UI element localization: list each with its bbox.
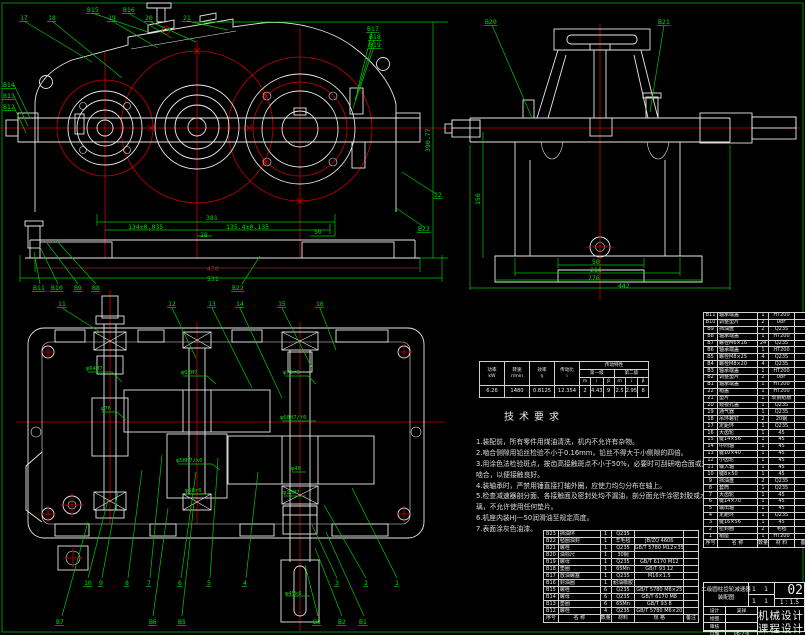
table-row: 16大齿轮145 xyxy=(704,430,805,437)
table-cell: 定距环 xyxy=(718,423,758,430)
signature-label: 设计 xyxy=(704,607,726,614)
table-row: 12小齿轮145 xyxy=(704,458,805,465)
table-cell: Q235 xyxy=(769,485,795,492)
table-row: 5输出轴145 xyxy=(704,506,805,513)
table-cell xyxy=(795,492,805,499)
table-row: 7大齿轮145 xyxy=(704,492,805,499)
table-cell: 2 xyxy=(758,478,769,485)
annotation-text: 2 xyxy=(364,579,368,587)
table-cell: 键16×56 xyxy=(718,520,758,527)
table-cell: 5 xyxy=(704,506,718,513)
table-row: B12螺栓4Q235GB/T 5780 M6×20 xyxy=(544,608,699,615)
table-cell xyxy=(684,559,699,566)
table-cell: Q235 xyxy=(612,587,636,594)
annotation-text: B9 xyxy=(74,284,82,292)
table-cell: B1 xyxy=(704,382,718,389)
table-header-cell: 数量 xyxy=(601,615,612,623)
table-cell: 1 xyxy=(758,513,769,520)
annotation-text: B7 xyxy=(56,618,64,626)
annotation-text: B13 xyxy=(3,92,15,100)
annotation-text: 531 xyxy=(207,275,219,283)
table-cell: 21 xyxy=(704,396,718,403)
table-cell: 2 xyxy=(758,327,769,334)
annotation-text: φ76 xyxy=(101,406,111,412)
table-cell: 螺栓 xyxy=(559,587,601,594)
table-cell: B22 xyxy=(544,538,559,545)
output-shaft-assembly xyxy=(228,332,374,622)
table-cell: Q235 xyxy=(769,478,795,485)
annotation-text: φ62H7 xyxy=(181,370,198,376)
table-header-cell: 备注 xyxy=(684,615,699,623)
table-cell: B13 xyxy=(544,601,559,608)
table-cell: 45 xyxy=(769,506,795,513)
table-cell xyxy=(795,334,805,341)
table-cell: B8 xyxy=(704,334,718,341)
table-row: B9挡油盘2Q235 xyxy=(704,327,805,334)
table-cell: 轴承端盖 xyxy=(718,347,758,354)
table-header-row: 序号名 称数量材料规 格备注 xyxy=(544,615,699,623)
annotation-text: B2 xyxy=(338,618,346,626)
table-cell: 螺栓 xyxy=(559,608,601,615)
table-row: 21垫片1软钢纸板 xyxy=(704,396,805,403)
table-row: B13垫圈665MnGB/T 93 8 xyxy=(544,601,699,608)
table-cell: Q235 xyxy=(612,608,636,615)
table-cell: 45 xyxy=(769,471,795,478)
annotation-text: φ16H7 xyxy=(283,490,300,496)
table-cell: 12 xyxy=(704,458,718,465)
annotation-text: 14 xyxy=(236,300,244,308)
table-cell: 调整垫片 xyxy=(718,375,758,382)
table-cell xyxy=(795,341,805,348)
table-cell: 2 xyxy=(704,527,718,534)
table-cell: B9 xyxy=(704,327,718,334)
signature-label: 审核 xyxy=(704,623,726,630)
table-cell xyxy=(795,327,805,334)
table-cell: 20 xyxy=(704,403,718,410)
annotation-text: 1 xyxy=(395,579,399,587)
signature-value: 吴祥 xyxy=(726,607,757,614)
annotation-text: B19 xyxy=(369,41,381,49)
table-cell xyxy=(684,608,699,615)
flange-hole xyxy=(377,58,390,71)
table-cell: 45 xyxy=(769,499,795,506)
table-cell: 14 xyxy=(704,444,718,451)
table-cell: 螺栓M6×16 xyxy=(718,341,758,348)
annotation-text: 22 xyxy=(434,191,442,199)
table-cell: 油标尺 xyxy=(559,552,601,559)
course-title: 机械设计 课程设计 xyxy=(758,607,804,635)
table-cell: 1 xyxy=(601,580,612,587)
table-row: B5螺栓M8×254Q235 xyxy=(704,354,805,361)
table-cell: Q235 xyxy=(769,354,795,361)
table-row: 1箱座1HT200 xyxy=(704,534,805,541)
annotation-text: 216 xyxy=(590,266,602,274)
table-cell: 1 xyxy=(758,451,769,458)
table-row: B20油标尺130钢 xyxy=(544,552,699,559)
table-row: 13键10×40145 xyxy=(704,451,805,458)
title-block: 二级圆柱齿轮减速器 装配图 1 1 1 1 02 1 : 1.5 设计吴祥绘图审… xyxy=(703,582,805,632)
table-cell: GB/T 5780 M12×35 xyxy=(635,545,684,552)
table-cell: 24 xyxy=(758,341,769,348)
table-cell xyxy=(684,587,699,594)
table-cell: 45 xyxy=(769,520,795,527)
annotation-text: B10 xyxy=(51,284,63,292)
table-cell xyxy=(795,368,805,375)
drawing-number: 02 xyxy=(775,583,804,599)
table-cell xyxy=(795,458,805,465)
signature-value xyxy=(726,615,757,622)
table-row: B14螺母6Q235GB/T 6170 M8 xyxy=(544,594,699,601)
table-row: B2调整垫片208F xyxy=(704,375,805,382)
table-cell: 耐油橡胶 xyxy=(612,580,636,587)
table-cell: 窥视孔盖 xyxy=(718,403,758,410)
table-row: B18垫圈165MnGB/T 93 12 xyxy=(544,566,699,573)
table-cell: 1 xyxy=(758,520,769,527)
table-cell: 2 xyxy=(758,527,769,534)
annotation-text: B18 xyxy=(369,33,381,41)
table-cell: B16 xyxy=(544,580,559,587)
table-cell: HT200 xyxy=(769,368,795,375)
drawing-title: 二级圆柱齿轮减速器 装配图 xyxy=(704,583,749,606)
table-cell xyxy=(795,354,805,361)
table-cell: 键14×70 xyxy=(718,499,758,506)
table-row: 22箱盖1HT200 xyxy=(704,389,805,396)
annotation-text: 150 xyxy=(474,193,482,205)
table-cell: 20钢 xyxy=(769,416,795,423)
table-row: 19通气器1Q235 xyxy=(704,409,805,416)
table-cell: B3 xyxy=(704,368,718,375)
table-row: 14中间轴145 xyxy=(704,444,805,451)
table-cell: 小齿轮 xyxy=(718,458,758,465)
table-row: B17放油螺塞1Q235M16×1.5 xyxy=(544,573,699,580)
table-cell xyxy=(795,347,805,354)
annotation-text: B21 xyxy=(658,18,670,26)
tech-requirement-item: 5.检查减速器剖分面、各接触面及密封处均不漏油，剖分面允许涂密封胶或水玻璃，不允… xyxy=(476,491,716,513)
table-cell xyxy=(795,375,805,382)
table-cell: 大齿轮 xyxy=(718,430,758,437)
table-cell: Q235 xyxy=(612,594,636,601)
table-cell: 大齿轮 xyxy=(718,492,758,499)
table-cell: 1 xyxy=(758,389,769,396)
table-row: 6键14×70145 xyxy=(704,499,805,506)
table-cell: 1 xyxy=(758,313,769,320)
table-cell: 1 xyxy=(601,566,612,573)
table-cell: 螺栓 xyxy=(559,545,601,552)
legs xyxy=(515,142,680,256)
annotation-text: φ48 xyxy=(291,466,301,472)
annotation-text: φ58H7/k6 xyxy=(176,458,203,464)
annotation-text: B14 xyxy=(3,81,15,89)
table-cell: 45 xyxy=(769,492,795,499)
annotation-text: 7 xyxy=(147,579,151,587)
table-cell: 1 xyxy=(758,403,769,410)
table-cell: Q235 xyxy=(612,573,636,580)
table-cell: Q235 xyxy=(769,341,795,348)
table-cell: 65Mn xyxy=(612,601,636,608)
table-cell: 封油圈 xyxy=(559,580,601,587)
table-cell xyxy=(795,389,805,396)
table-cell: 毛毡 xyxy=(769,527,795,534)
table-cell: B2 xyxy=(704,375,718,382)
table-row: B23挡油环1Q235 xyxy=(544,531,699,538)
table-cell: 1 xyxy=(601,552,612,559)
table-cell: 9 xyxy=(704,478,718,485)
table-cell xyxy=(795,430,805,437)
table-row: B8轴承端盖1HT200 xyxy=(704,334,805,341)
table-header-cell: 材 料 xyxy=(769,540,795,548)
table-cell: 垫圈 xyxy=(559,601,601,608)
table-cell: B11 xyxy=(704,313,718,320)
signature-value: 06-7-6 xyxy=(726,631,757,635)
annotation-text: B1 xyxy=(359,618,367,626)
table-cell: 1 xyxy=(758,409,769,416)
table-cell: M16×1.5 xyxy=(635,573,684,580)
table-row: B10调整垫片208F xyxy=(704,320,805,327)
table-header-cell: 备注 xyxy=(795,540,805,548)
annotation-text: B6 xyxy=(149,618,157,626)
housing-plan-outer xyxy=(28,328,424,538)
annotation-text: φ60H7/f6 xyxy=(280,415,307,421)
tech-requirements-title: 技术要求 xyxy=(504,408,716,423)
annotation-text: 11 xyxy=(58,300,66,308)
front-view xyxy=(0,3,456,258)
annotation-text: 8 xyxy=(125,579,129,587)
table-cell: 1 xyxy=(758,382,769,389)
table-cell: 4 xyxy=(704,513,718,520)
table-cell xyxy=(795,382,805,389)
table-cell: 挡油环 xyxy=(559,531,601,538)
table-cell xyxy=(795,478,805,485)
table-cell: Q235 xyxy=(612,531,636,538)
annotation-text: 20 xyxy=(145,14,153,22)
base-feet xyxy=(25,240,420,258)
tech-requirement-item: 6.机座内装HJ—50润滑油至规定高度。 xyxy=(476,513,716,524)
table-cell: 轴承端盖 xyxy=(718,382,758,389)
table-cell: B15 xyxy=(544,587,559,594)
table-cell: 1 xyxy=(758,396,769,403)
tech-requirement-item: 4.装轴承时，严禁用锤直接打轴外圈，应使力均匀分布在轴上。 xyxy=(476,481,716,492)
annotation-text: B22 xyxy=(232,284,244,292)
table-row: 11输入轴145 xyxy=(704,465,805,472)
table-row: B22毡圈油封1羊毛毡JB/ZQ 4606 xyxy=(544,538,699,545)
table-cell xyxy=(795,403,805,410)
table-row: B1轴承端盖1HT200 xyxy=(704,382,805,389)
table-cell xyxy=(795,499,805,506)
table-cell xyxy=(795,423,805,430)
annotation-text: 13 xyxy=(208,300,216,308)
annotation-text: 28 xyxy=(200,231,208,239)
table-row: 17定距环1Q235 xyxy=(704,423,805,430)
table-cell: 1 xyxy=(601,559,612,566)
annotation-text: 442 xyxy=(618,282,630,290)
annotation-text: B12 xyxy=(3,103,15,111)
table-cell xyxy=(635,552,684,559)
annotation-text: B17 xyxy=(367,25,379,33)
std-parts-table: B23挡油环1Q235B22毡圈油封1羊毛毡JB/ZQ 4606B21螺栓1Q2… xyxy=(543,530,699,623)
annotation-text: 50 xyxy=(314,228,322,236)
table-cell: 螺栓M8×25 xyxy=(718,354,758,361)
table-cell: GB/T 6170 M8 xyxy=(635,594,684,601)
table-cell: Q235 xyxy=(612,559,636,566)
table-cell: 通气器 xyxy=(718,409,758,416)
upper-body xyxy=(537,50,658,118)
side-view xyxy=(445,24,800,300)
table-cell: B19 xyxy=(544,559,559,566)
table-cell: 1 xyxy=(758,506,769,513)
table-cell: 螺母 xyxy=(559,594,601,601)
table-cell: 放油螺塞 xyxy=(559,573,601,580)
table-cell: 1 xyxy=(601,573,612,580)
signature-label: 日期 xyxy=(704,631,726,635)
table-cell: 65Mn xyxy=(612,566,636,573)
table-cell: B20 xyxy=(544,552,559,559)
table-cell: B12 xyxy=(544,608,559,615)
table-cell: 1 xyxy=(758,347,769,354)
table-cell: B4 xyxy=(704,361,718,368)
table-cell: 2 xyxy=(758,320,769,327)
table-cell: 18 xyxy=(704,416,718,423)
annotation-text: 135.4±0.135 xyxy=(226,223,269,231)
table-header-cell: 序号 xyxy=(544,615,559,623)
table-header-row: 序号名 称数量材 料备注 xyxy=(704,540,805,548)
table-cell: 7 xyxy=(704,492,718,499)
signature-label: 绘图 xyxy=(704,615,726,622)
table-cell: 30钢 xyxy=(612,552,636,559)
table-cell xyxy=(795,465,805,472)
table-row: B11轴承端盖1HT200 xyxy=(704,313,805,320)
lifting-slot xyxy=(567,35,637,44)
table-cell: 螺栓M8×20 xyxy=(718,361,758,368)
table-cell xyxy=(795,451,805,458)
table-cell xyxy=(684,531,699,538)
table-row: 8套筒1Q235 xyxy=(704,485,805,492)
table-cell xyxy=(795,409,805,416)
table-cell: 垫片 xyxy=(718,396,758,403)
table-cell xyxy=(795,513,805,520)
table-cell: 密封圈 xyxy=(718,527,758,534)
table-cell: B23 xyxy=(544,531,559,538)
table-cell: 键10×40 xyxy=(718,451,758,458)
table-cell xyxy=(795,320,805,327)
table-cell: 1 xyxy=(758,499,769,506)
table-cell: 轴承端盖 xyxy=(718,334,758,341)
table-cell: 1 xyxy=(758,465,769,472)
table-cell xyxy=(795,437,805,444)
table-cell: 输入轴 xyxy=(718,465,758,472)
table-cell xyxy=(635,531,684,538)
annotation-text: 3 xyxy=(335,579,339,587)
table-cell xyxy=(795,444,805,451)
signature-value xyxy=(726,623,757,630)
table-cell xyxy=(795,471,805,478)
table-cell: Q235 xyxy=(769,403,795,410)
table-cell: 中间轴 xyxy=(718,444,758,451)
table-header-cell: 序号 xyxy=(704,540,718,548)
annotation-text: 134±0.035 xyxy=(128,223,163,231)
table-cell: 1 xyxy=(758,437,769,444)
table-cell: 软钢纸板 xyxy=(769,396,795,403)
table-cell: B21 xyxy=(544,545,559,552)
table-header-cell: 规 格 xyxy=(635,615,684,623)
table-cell: 1 xyxy=(758,430,769,437)
table-cell xyxy=(684,573,699,580)
table-cell: 套筒 xyxy=(718,485,758,492)
table-row: 15键14×56145 xyxy=(704,437,805,444)
annotation-text: B5 xyxy=(178,618,186,626)
table-cell xyxy=(795,396,805,403)
annotation-text: 50 xyxy=(592,258,600,266)
annotation-text: B23 xyxy=(418,225,430,233)
bearing-bores xyxy=(68,74,355,184)
lifting-plate xyxy=(554,29,650,50)
table-cell xyxy=(795,416,805,423)
table-cell: HT200 xyxy=(769,313,795,320)
table-cell: HT200 xyxy=(769,382,795,389)
table-cell: Q235 xyxy=(769,361,795,368)
annotation-text: B16 xyxy=(123,6,135,14)
tech-requirement-item: 1.装配前，所有零件用煤油清洗，机内不允许有杂物。 xyxy=(476,437,716,448)
drawing-scale: 1 : 1.5 xyxy=(775,599,804,606)
table-cell: 45 xyxy=(769,458,795,465)
table-cell xyxy=(684,545,699,552)
table-cell: 1 xyxy=(758,334,769,341)
table-cell: 2 xyxy=(758,375,769,382)
table-cell: B18 xyxy=(544,566,559,573)
table-cell: 1 xyxy=(758,485,769,492)
table-cell: 定距环 xyxy=(718,513,758,520)
table-cell: 挡油盘 xyxy=(718,327,758,334)
table-cell: GB/T 6170 M12 xyxy=(635,559,684,566)
table-cell: 6 xyxy=(601,601,612,608)
table-cell: 1 xyxy=(758,534,769,541)
table-cell: 羊毛毡 xyxy=(612,538,636,545)
annotation-text: 12 xyxy=(168,300,176,308)
table-cell xyxy=(795,534,805,541)
annotation-text: φ64H7 xyxy=(86,366,103,372)
table-cell: 4 xyxy=(601,608,612,615)
annotation-text: 17 xyxy=(20,14,28,22)
table-row: B16封油圈1耐油橡胶 xyxy=(544,580,699,587)
table-cell: GB/T 5780 M6×20 xyxy=(635,608,684,615)
table-cell: 轴承端盖 xyxy=(718,313,758,320)
table-cell: 垫圈 xyxy=(559,566,601,573)
table-cell: B17 xyxy=(544,573,559,580)
table-cell: 4 xyxy=(758,354,769,361)
table-cell: 16 xyxy=(704,430,718,437)
table-cell: 1 xyxy=(601,531,612,538)
bearing-bells xyxy=(541,142,669,159)
table-cell: Q235 xyxy=(769,409,795,416)
annotation-text: B15 xyxy=(87,6,99,14)
table-cell xyxy=(684,580,699,587)
table-row: B4螺栓M8×204Q235 xyxy=(704,361,805,368)
table-cell: 19 xyxy=(704,409,718,416)
annotation-text: 4 xyxy=(243,579,247,587)
table-cell xyxy=(684,594,699,601)
table-cell: GB/T 5780 M8×25 xyxy=(635,587,684,594)
table-cell: 1 xyxy=(758,423,769,430)
table-cell: 3 xyxy=(704,520,718,527)
table-cell: 10 xyxy=(704,471,718,478)
annotation-text: φ45k6 xyxy=(285,591,302,597)
table-cell: 08F xyxy=(769,375,795,382)
table-cell xyxy=(684,552,699,559)
cad-drawing-sheet: 1718B1519B162021B17B18B19B14B13B12B11B10… xyxy=(0,0,805,635)
table-cell: 毡圈油封 xyxy=(559,538,601,545)
input-shaft-side xyxy=(452,120,480,137)
annotation-text: 19 xyxy=(108,14,116,22)
table-cell: 15 xyxy=(704,437,718,444)
